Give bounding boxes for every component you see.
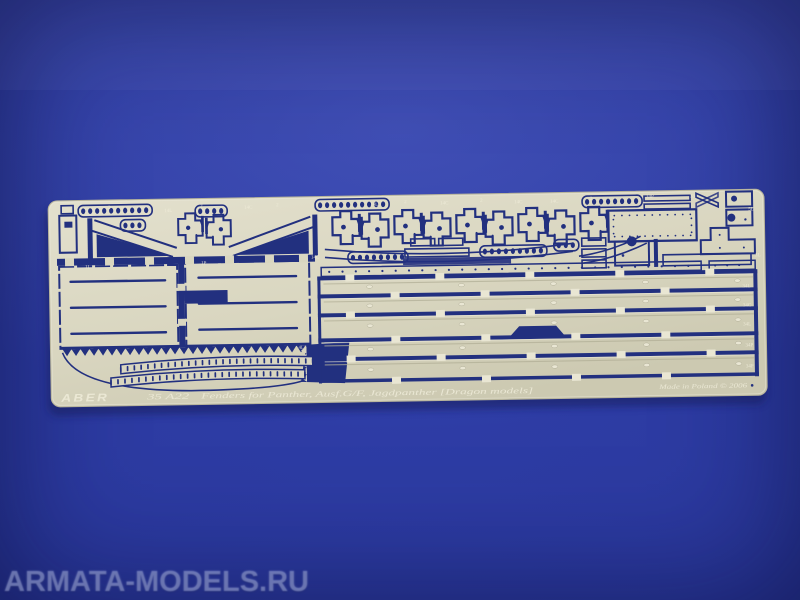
part-label: 34C bbox=[743, 303, 752, 308]
part-label: 3L bbox=[755, 253, 761, 258]
part-label: 14L bbox=[370, 203, 378, 208]
part-label: 1P bbox=[201, 261, 207, 266]
fret-brand-etched: ABER bbox=[60, 392, 109, 405]
part-label: 14C bbox=[244, 206, 253, 211]
etched-fret-plate: 214L214C2214L214C214C14C234P335L1L1P14C3… bbox=[45, 189, 767, 416]
part-label: 34P bbox=[746, 364, 754, 369]
part-label: 1L bbox=[85, 265, 91, 270]
watermark: ARMATA-MODELS.RU bbox=[4, 566, 309, 599]
part-label: 14C bbox=[311, 255, 320, 260]
part-label: 34L bbox=[743, 322, 751, 327]
light-glare bbox=[0, 0, 800, 90]
part-label: 5L bbox=[748, 207, 754, 212]
part-label: 4L bbox=[298, 346, 304, 351]
part-label: 33 bbox=[690, 194, 696, 199]
part-label: 14L bbox=[164, 209, 172, 214]
part-label: 14C bbox=[514, 200, 523, 205]
photo-canvas: 214L214C2214L214C214C14C234P335L1L1P14C3… bbox=[0, 0, 800, 600]
part-label: 34P bbox=[745, 343, 753, 348]
fret-part-number-etched: 35 A22 bbox=[145, 392, 189, 402]
part-label: 34L bbox=[742, 284, 750, 289]
part-label: 34P bbox=[646, 195, 654, 200]
part-label: 14C bbox=[550, 200, 559, 205]
part-label: 14C bbox=[440, 201, 449, 206]
photo-scene: 214L214C2214L214C214C14C234P335L1L1P14C3… bbox=[0, 0, 800, 600]
fret-origin-etched: Made in Poland © 2006 bbox=[658, 382, 749, 390]
